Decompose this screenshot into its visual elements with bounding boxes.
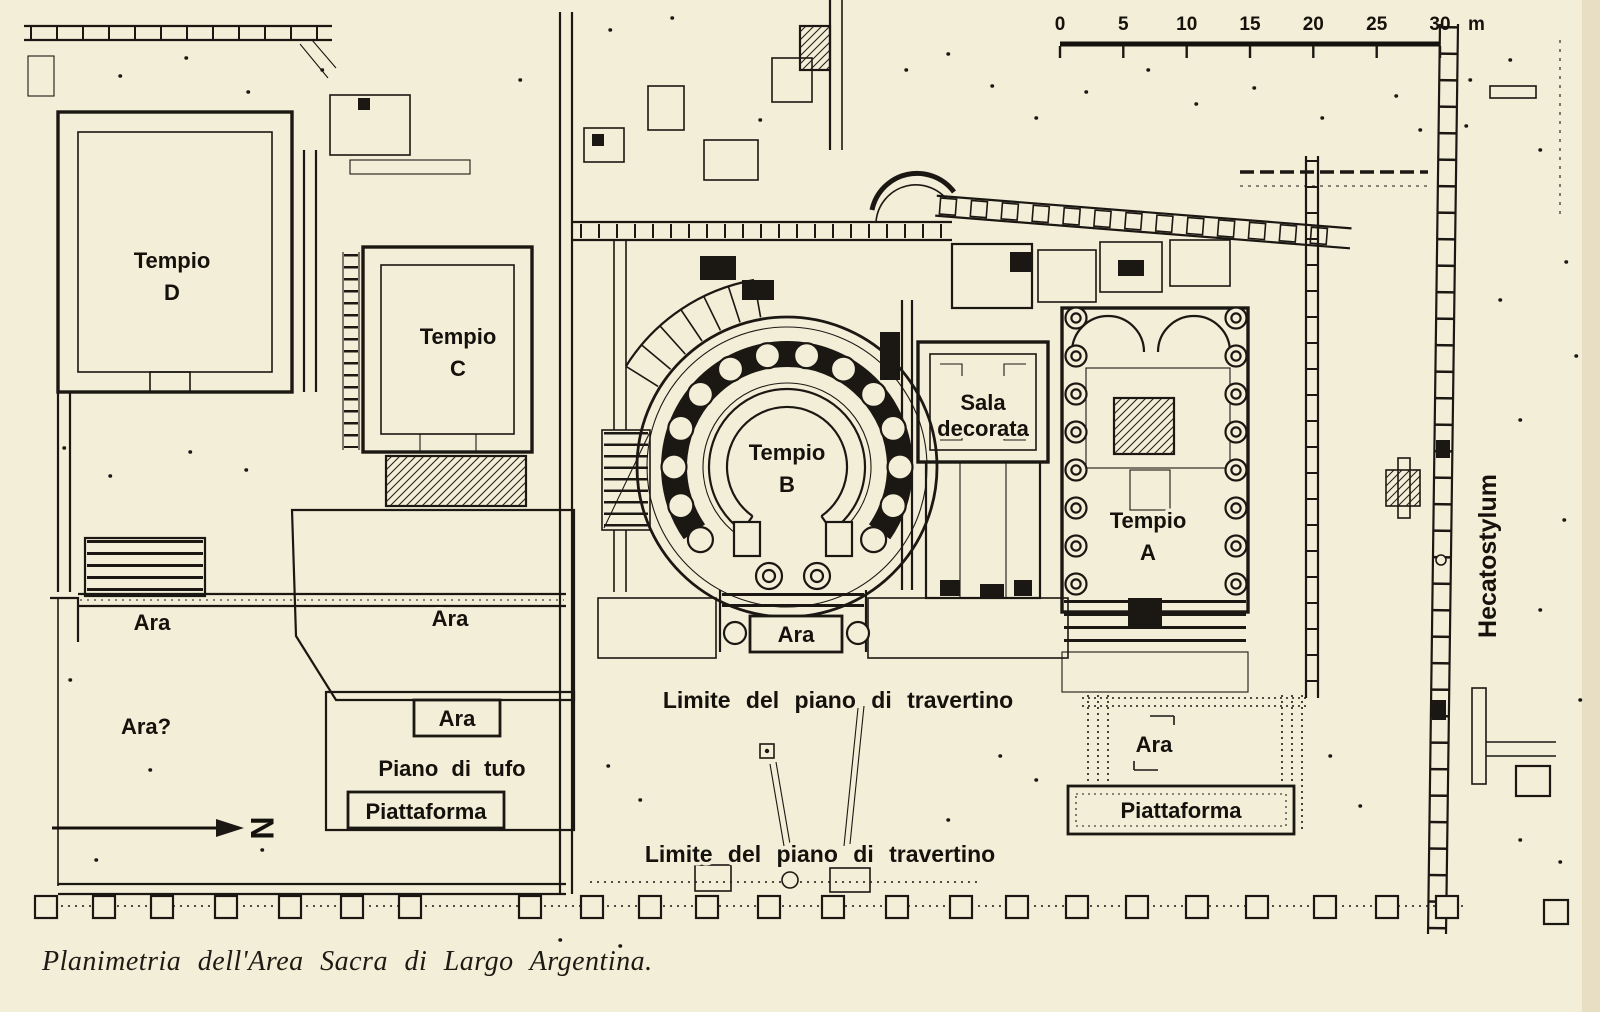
tempio-a-label-line1: Tempio xyxy=(1110,508,1187,533)
tempio-c-label-line1: Tempio xyxy=(420,324,497,349)
scanned-plan-page: 0 5 10 15 20 25 30 m N Tempio D Tempio C… xyxy=(0,0,1600,1012)
tempio-c-label-line2: C xyxy=(450,356,466,381)
limite-travertino-south-label: Limite del piano di travertino xyxy=(645,841,995,867)
north-arrow-label: N xyxy=(244,816,280,839)
scale-tick-label-5: 5 xyxy=(1118,14,1129,35)
figure-caption: Planimetria dell'Area Sacra di Largo Arg… xyxy=(41,946,653,977)
scale-tick-label-30: 30 xyxy=(1429,14,1450,35)
piattaforma-east-label: Piattaforma xyxy=(1120,798,1242,823)
ara-piano-tufo-label: Ara xyxy=(439,706,476,731)
piattaforma-west-label: Piattaforma xyxy=(365,799,487,824)
scale-tick-label-15: 15 xyxy=(1239,14,1261,35)
hecatostylum-label: Hecatostylum xyxy=(1474,474,1502,638)
ara-center-label: Ara xyxy=(432,606,469,631)
ara-west-uncertain-label: Ara? xyxy=(121,714,171,739)
tempio-d-label-line2: D xyxy=(164,280,180,305)
ara-tempio-b-label: Ara xyxy=(778,622,815,647)
scale-tick-label-25: 25 xyxy=(1366,14,1388,35)
tempio-d-label-line1: Tempio xyxy=(134,248,211,273)
tempio-b-label-line2: B xyxy=(779,472,795,497)
piano-di-tufo-label: Piano di tufo xyxy=(378,756,525,781)
site-plan-drawing: 0 5 10 15 20 25 30 m N Tempio D Tempio C… xyxy=(0,0,1600,1012)
page-edge-shadow xyxy=(1582,0,1600,1012)
scale-tick-label-0: 0 xyxy=(1055,14,1066,35)
scale-tick-label-10: 10 xyxy=(1176,14,1197,35)
ara-west-label: Ara xyxy=(134,610,171,635)
sala-decorata-label-line2: decorata xyxy=(937,416,1029,441)
ara-east-label: Ara xyxy=(1136,732,1173,757)
scale-unit-label: m xyxy=(1468,14,1485,35)
tempio-b-label-line1: Tempio xyxy=(749,440,826,465)
tempio-a-label-line2: A xyxy=(1140,540,1156,565)
sala-decorata-label-line1: Sala xyxy=(960,390,1006,415)
scale-tick-label-20: 20 xyxy=(1303,14,1324,35)
limite-travertino-north-label: Limite del piano di travertino xyxy=(663,687,1013,713)
